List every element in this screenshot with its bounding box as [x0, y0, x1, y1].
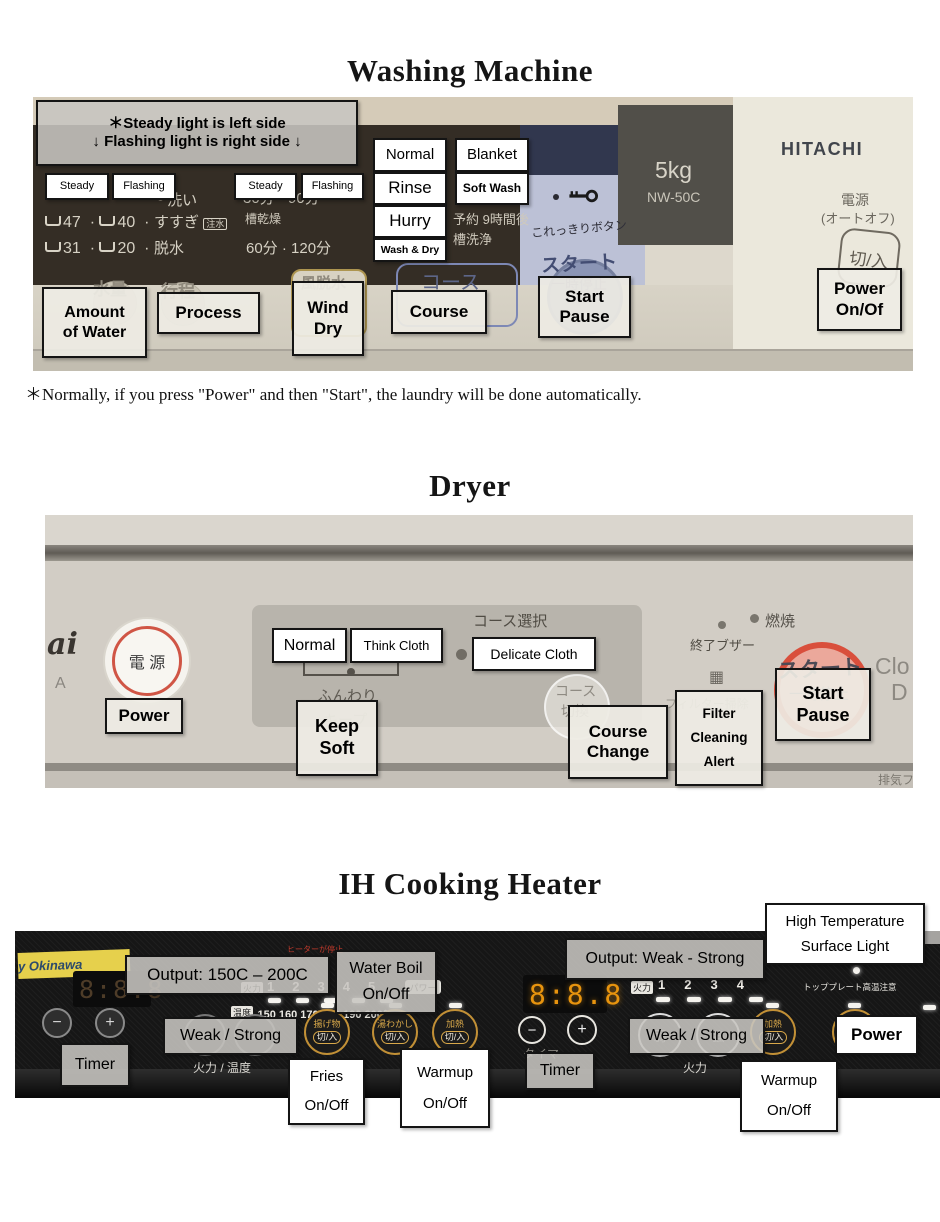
key-icon	[567, 187, 599, 205]
mode-led	[321, 1003, 334, 1008]
dryer-power-label: Power	[105, 698, 183, 734]
level-led-right	[687, 997, 701, 1002]
note-line1: ＊Steady light is left side	[108, 115, 286, 133]
washer-footnote: ＊Normally, if you press "Power" and then…	[25, 380, 642, 405]
right-level-row: 火力	[631, 980, 653, 998]
rinse-tag: 注水	[203, 218, 227, 230]
dryer-groove	[45, 545, 913, 561]
process-label: Process	[157, 292, 260, 334]
mode-led-right	[766, 1003, 779, 1008]
steady-label-1: Steady	[45, 173, 109, 200]
rinse-label: Rinse	[373, 172, 447, 205]
washer-bottom-edge	[33, 349, 913, 371]
note-line2: ↓ Flashing light is right side ↓	[92, 133, 301, 151]
hurry-label: Hurry	[373, 205, 447, 238]
fries-label: Fries On/Off	[288, 1058, 365, 1125]
water-level-icon	[99, 242, 115, 252]
dryer-brand-partial: ai	[47, 627, 78, 662]
water-boil-label: Water Boil On/Off	[335, 950, 437, 1014]
dryer-bottom-edge	[45, 771, 913, 788]
weak-strong-left-label: Weak / Strong	[163, 1017, 298, 1055]
dryer-power-button: 電 源	[103, 617, 191, 705]
top-plate-warning-jp: トッププレート高温注意	[803, 981, 897, 993]
level-led-right	[749, 997, 763, 1002]
weak-strong-right-label: Weak / Strong	[628, 1017, 765, 1055]
spin-times: 60分 · 120分	[246, 237, 331, 258]
normal-label: Normal	[373, 138, 447, 172]
flashing-label-1: Flashing	[112, 173, 176, 200]
water-level-row1: 47 · 40 · すすぎ 注水	[45, 211, 227, 232]
water-level-row2: 31 · 20 · 脱水	[45, 237, 184, 258]
brand-logo: HITACHI	[781, 139, 863, 160]
timer-plus-button-right: +	[567, 1015, 597, 1045]
fries-onoff-button: 揚げ物 切/入	[304, 1009, 350, 1055]
filter-cleaning-alert-label: Filter Cleaning Alert	[675, 690, 763, 786]
timer-plus-button-left: +	[95, 1008, 125, 1038]
ih-power-label: Power	[835, 1015, 918, 1055]
timer-left-label: Timer	[60, 1043, 130, 1087]
dryer-title: Dryer	[0, 468, 940, 504]
course-change-label: Course Change	[568, 705, 668, 779]
model-label: NW-50C	[647, 189, 700, 205]
delicate-indicator-dot	[456, 649, 467, 660]
water-level-icon	[45, 216, 61, 226]
karyoku-ondo-jp: 火力 / 温度	[193, 1059, 251, 1076]
washer-title: Washing Machine	[0, 53, 940, 89]
wash-dry-label: Wash & Dry	[373, 238, 447, 262]
instruction-document: Washing Machine 洗い 30分 · 90分 47 · 40 · す…	[0, 0, 940, 1222]
level-led	[296, 998, 309, 1003]
timer-minus-button-right: −	[518, 1016, 546, 1044]
reserve-label: 予約 9時間後	[453, 209, 529, 228]
dryer-start-pause-label: Start Pause	[775, 668, 871, 741]
water-level-icon	[45, 242, 61, 252]
steady-label-2: Steady	[234, 173, 297, 200]
buzzer-indicator-dot	[718, 621, 726, 629]
right-display: 8:8.8	[529, 978, 623, 1011]
burn-jp: 燃焼	[765, 610, 795, 631]
output-right-label: Output: Weak - Strong	[565, 938, 765, 980]
power-jp-label: 電源	[841, 190, 869, 210]
warmup-right-label: Warmup On/Off	[740, 1060, 838, 1132]
timer-right-label: Timer	[525, 1052, 595, 1090]
course-bracket	[303, 661, 399, 676]
timer-minus-button-left: −	[42, 1008, 72, 1038]
child-lock-indicator-dot	[553, 194, 559, 200]
amount-of-water-label: Amount of Water	[42, 287, 147, 358]
dryer-bottom-groove	[45, 763, 913, 771]
karyoku-badge-right: 火力	[631, 981, 653, 994]
course-label: Course	[391, 290, 487, 334]
soft-wash-label: Soft Wash	[455, 172, 529, 205]
dryer-normal-label: Normal	[272, 628, 347, 663]
washer-start-pause-label: Start Pause	[538, 276, 631, 338]
level-led-right	[656, 997, 670, 1002]
washer-power-label: Power On/Of	[817, 268, 902, 331]
exhaust-partial-jp: 排気フィル	[878, 771, 913, 788]
level-led-right	[718, 997, 732, 1002]
keep-soft-label: Keep Soft	[296, 700, 378, 776]
filter-grid-icon: ▦	[709, 667, 724, 687]
ih-title: IH Cooking Heater	[0, 866, 940, 902]
auto-off-label: (オートオフ)	[821, 208, 895, 227]
mode-led-right	[848, 1003, 861, 1008]
tub-wash-label: 槽洗浄	[453, 229, 492, 248]
dryer-logo-partial2: D	[891, 679, 908, 706]
karyoku-jp-right: 火力	[683, 1059, 707, 1076]
capacity-label: 5kg	[655, 157, 692, 184]
high-temp-label: High Temperature Surface Light	[765, 903, 925, 965]
edge-led	[923, 1005, 936, 1010]
flashing-label-2: Flashing	[301, 173, 364, 200]
dryer-think-cloth-label: Think Cloth	[350, 628, 443, 663]
level-led	[268, 998, 281, 1003]
kirikae-jp1: コース	[555, 681, 596, 701]
tub-dry-label: 槽乾燥	[245, 210, 281, 227]
course-select-jp: コース選択	[473, 610, 547, 631]
burn-indicator-dot	[750, 614, 759, 623]
dryer-brand-partial2: A	[55, 675, 66, 693]
water-level-icon	[99, 216, 115, 226]
hot-surface-led	[853, 967, 860, 974]
mode-led	[449, 1003, 462, 1008]
buzzer-jp: 終了ブザー	[690, 635, 755, 654]
blanket-label: Blanket	[455, 138, 529, 172]
dryer-logo-partial1: Clo	[875, 653, 910, 680]
dryer-power-jp: 電 源	[112, 626, 182, 696]
output-left-label: Output: 150C – 200C	[125, 955, 330, 995]
wind-dry-label: Wind Dry	[292, 281, 364, 356]
dryer-top-edge	[45, 515, 913, 545]
dryer-delicate-cloth-label: Delicate Cloth	[472, 637, 596, 671]
warmup-left-label: Warmup On/Off	[400, 1048, 490, 1128]
washer-note-box: ＊Steady light is left side ↓ Flashing li…	[36, 100, 358, 166]
